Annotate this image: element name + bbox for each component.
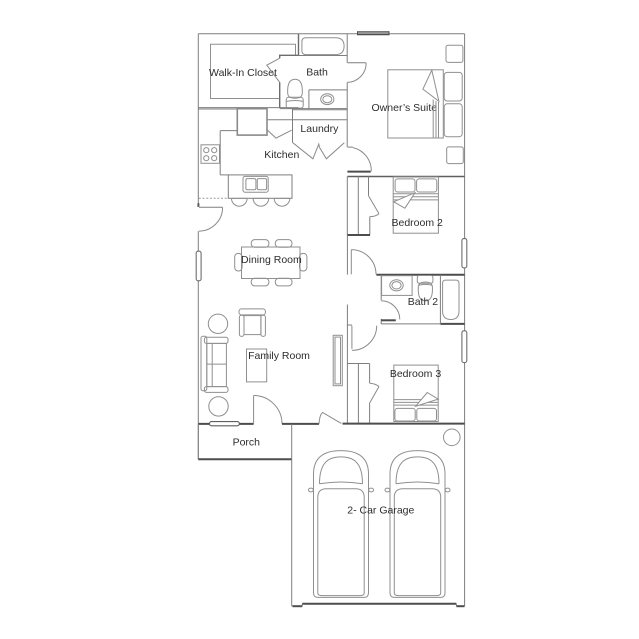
svg-text:Porch: Porch xyxy=(233,437,261,449)
svg-text:Family Room: Family Room xyxy=(248,350,310,362)
svg-text:Bath: Bath xyxy=(306,67,328,79)
svg-text:Laundry: Laundry xyxy=(300,123,339,135)
svg-text:2- Car Garage: 2- Car Garage xyxy=(347,505,414,517)
svg-text:Bedroom 2: Bedroom 2 xyxy=(392,217,444,229)
svg-text:Bath 2: Bath 2 xyxy=(408,296,439,308)
svg-text:Owner’s Suite: Owner’s Suite xyxy=(372,102,438,114)
svg-text:Bedroom 3: Bedroom 3 xyxy=(390,368,442,380)
svg-text:Dining Room: Dining Room xyxy=(241,254,302,266)
svg-text:Walk-In Closet: Walk-In Closet xyxy=(209,67,277,79)
svg-text:Kitchen: Kitchen xyxy=(264,149,299,161)
